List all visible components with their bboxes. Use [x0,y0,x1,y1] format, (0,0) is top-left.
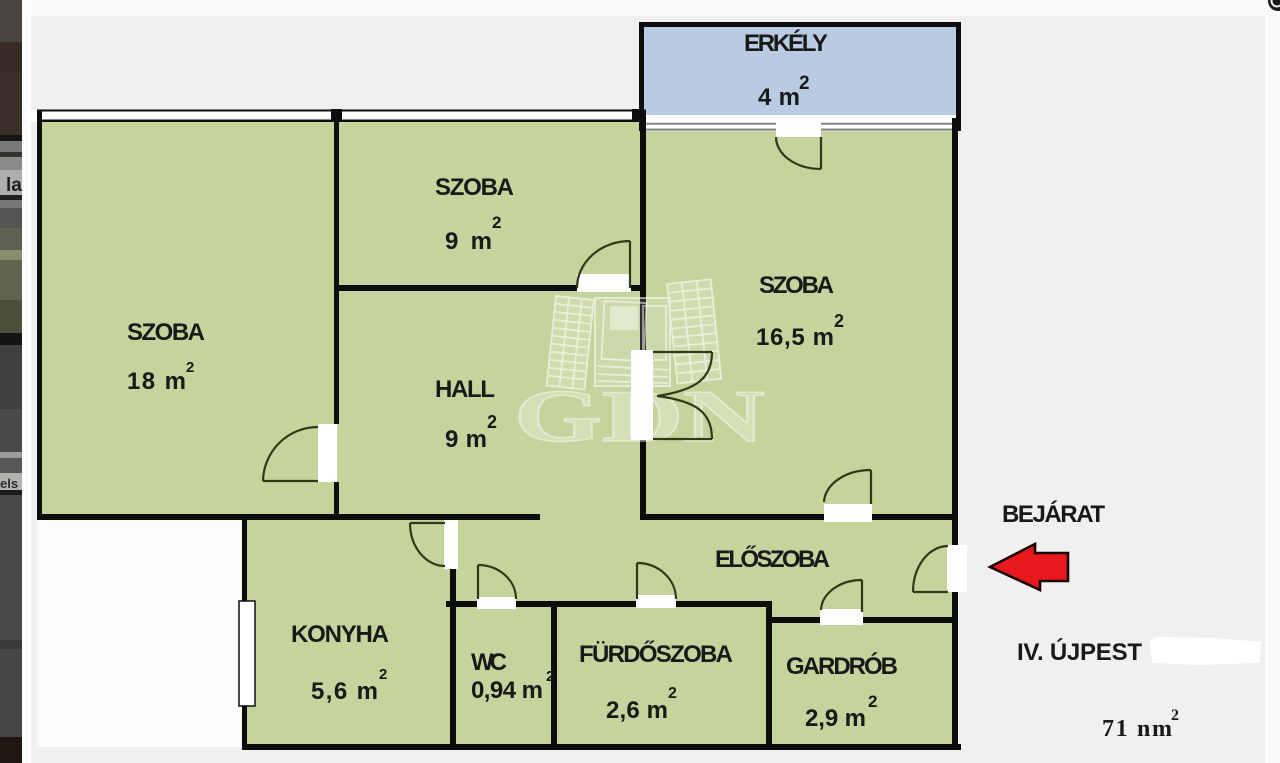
svg-text:FÜRDŐSZOBA: FÜRDŐSZOBA [579,640,733,668]
svg-text:2: 2 [379,666,387,683]
svg-text:2: 2 [868,692,877,711]
svg-text:la: la [6,175,22,196]
svg-text:2,9 m: 2,9 m [805,705,866,732]
svg-text:SZOBA: SZOBA [759,272,834,299]
svg-text:WC: WC [471,649,507,676]
svg-text:KONYHA: KONYHA [291,621,389,648]
svg-text:els: els [0,476,18,491]
svg-text:IV. ÚJPEST: IV. ÚJPEST [1017,638,1142,666]
svg-text:SZOBA: SZOBA [127,319,205,346]
svg-text:2,6 m: 2,6 m [606,697,668,724]
svg-text:SZOBA: SZOBA [435,174,514,201]
svg-text:2: 2 [492,213,501,232]
svg-text:BEJÁRAT: BEJÁRAT [1002,500,1105,528]
svg-text:2: 2 [834,311,844,331]
svg-text:HALL: HALL [435,376,495,403]
svg-text:GARDRÓB: GARDRÓB [786,652,898,680]
svg-text:71 nm: 71 nm [1102,716,1172,742]
svg-text:18 m: 18 m [127,368,186,395]
svg-text:2: 2 [799,73,810,94]
svg-text:4 m: 4 m [758,84,800,111]
svg-text:5,6 m: 5,6 m [311,678,378,705]
svg-text:9m: 9m [445,426,487,453]
svg-text:ELŐSZOBA: ELŐSZOBA [715,545,830,573]
svg-text:16,5 m: 16,5 m [756,324,834,351]
svg-text:2: 2 [1171,707,1179,724]
svg-text:2: 2 [546,668,554,685]
svg-text:0,94 m: 0,94 m [471,677,543,704]
svg-text:ERKÉLY: ERKÉLY [744,29,828,57]
svg-text:2: 2 [487,412,497,432]
svg-text:2: 2 [186,359,194,376]
svg-text:2: 2 [668,685,677,702]
